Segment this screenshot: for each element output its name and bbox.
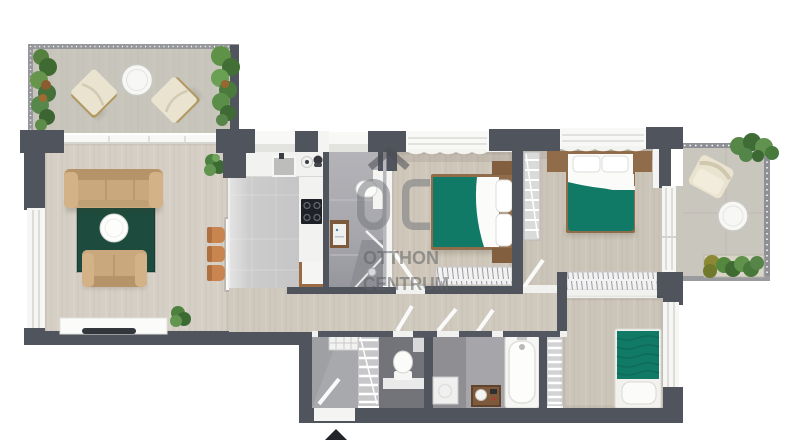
svg-text:OTTHON: OTTHON bbox=[363, 248, 439, 268]
svg-text:CENTRUM: CENTRUM bbox=[363, 274, 449, 294]
